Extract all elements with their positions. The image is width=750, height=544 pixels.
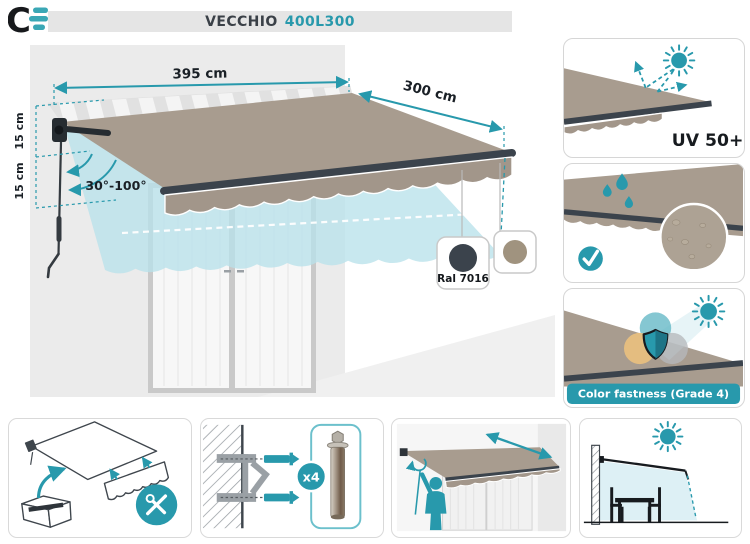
swatch-ral7016 [449, 244, 477, 272]
install-card-mounting: x4 [200, 418, 384, 538]
logo-bars-icon [29, 8, 48, 31]
install-card-crank [391, 418, 571, 538]
swatch-ral-label: Ral 7016 [437, 273, 489, 285]
wall-section [592, 445, 600, 524]
dim-width-label: 395 cm [172, 66, 227, 83]
feature-panel-fastness: Color fastness (Grade 4) [563, 288, 745, 408]
dim-drop-label: 15 cm [13, 162, 26, 199]
feature-panel-uv: UV 50+ [563, 38, 745, 158]
wall-bracket-anchors-icon [203, 425, 299, 528]
awning-slice [564, 68, 712, 134]
check-icon [578, 246, 603, 270]
shade-coverage-icon [584, 422, 728, 524]
install-card-unbox [8, 418, 192, 538]
infographic-page: C VECCHIO 400L300 [0, 0, 750, 544]
feature-panel-water [563, 163, 745, 283]
sun-icon [653, 422, 682, 451]
anchor-count-label: x4 [303, 470, 320, 485]
door-handle [237, 270, 244, 273]
dim-cassette-label: 15 cm [13, 112, 26, 149]
uv-label: UV 50+ [672, 131, 743, 151]
anchor-count-badge: x4 [296, 462, 326, 491]
sun-icon [664, 45, 694, 75]
crank-operation-icon [397, 424, 566, 531]
title-bar: VECCHIO 400L300 [48, 11, 512, 32]
install-card-shade [579, 418, 742, 538]
product-title: VECCHIO [205, 14, 278, 30]
dim-projection-label: 300 cm [401, 78, 458, 107]
awning-illustration: 395 cm 300 cm 15 cm 15 cm 30°-100° Ral 7 [0, 30, 555, 420]
magnifier-fabric-icon [660, 204, 727, 270]
product-model: 400L300 [285, 14, 355, 30]
door-handle [224, 270, 231, 273]
expansion-anchor [327, 431, 348, 519]
fastness-label: Color fastness (Grade 4) [578, 388, 729, 401]
swatch-fabric [503, 240, 527, 264]
tools-icon [136, 484, 177, 525]
tilt-angle-label: 30°-100° [85, 178, 146, 193]
